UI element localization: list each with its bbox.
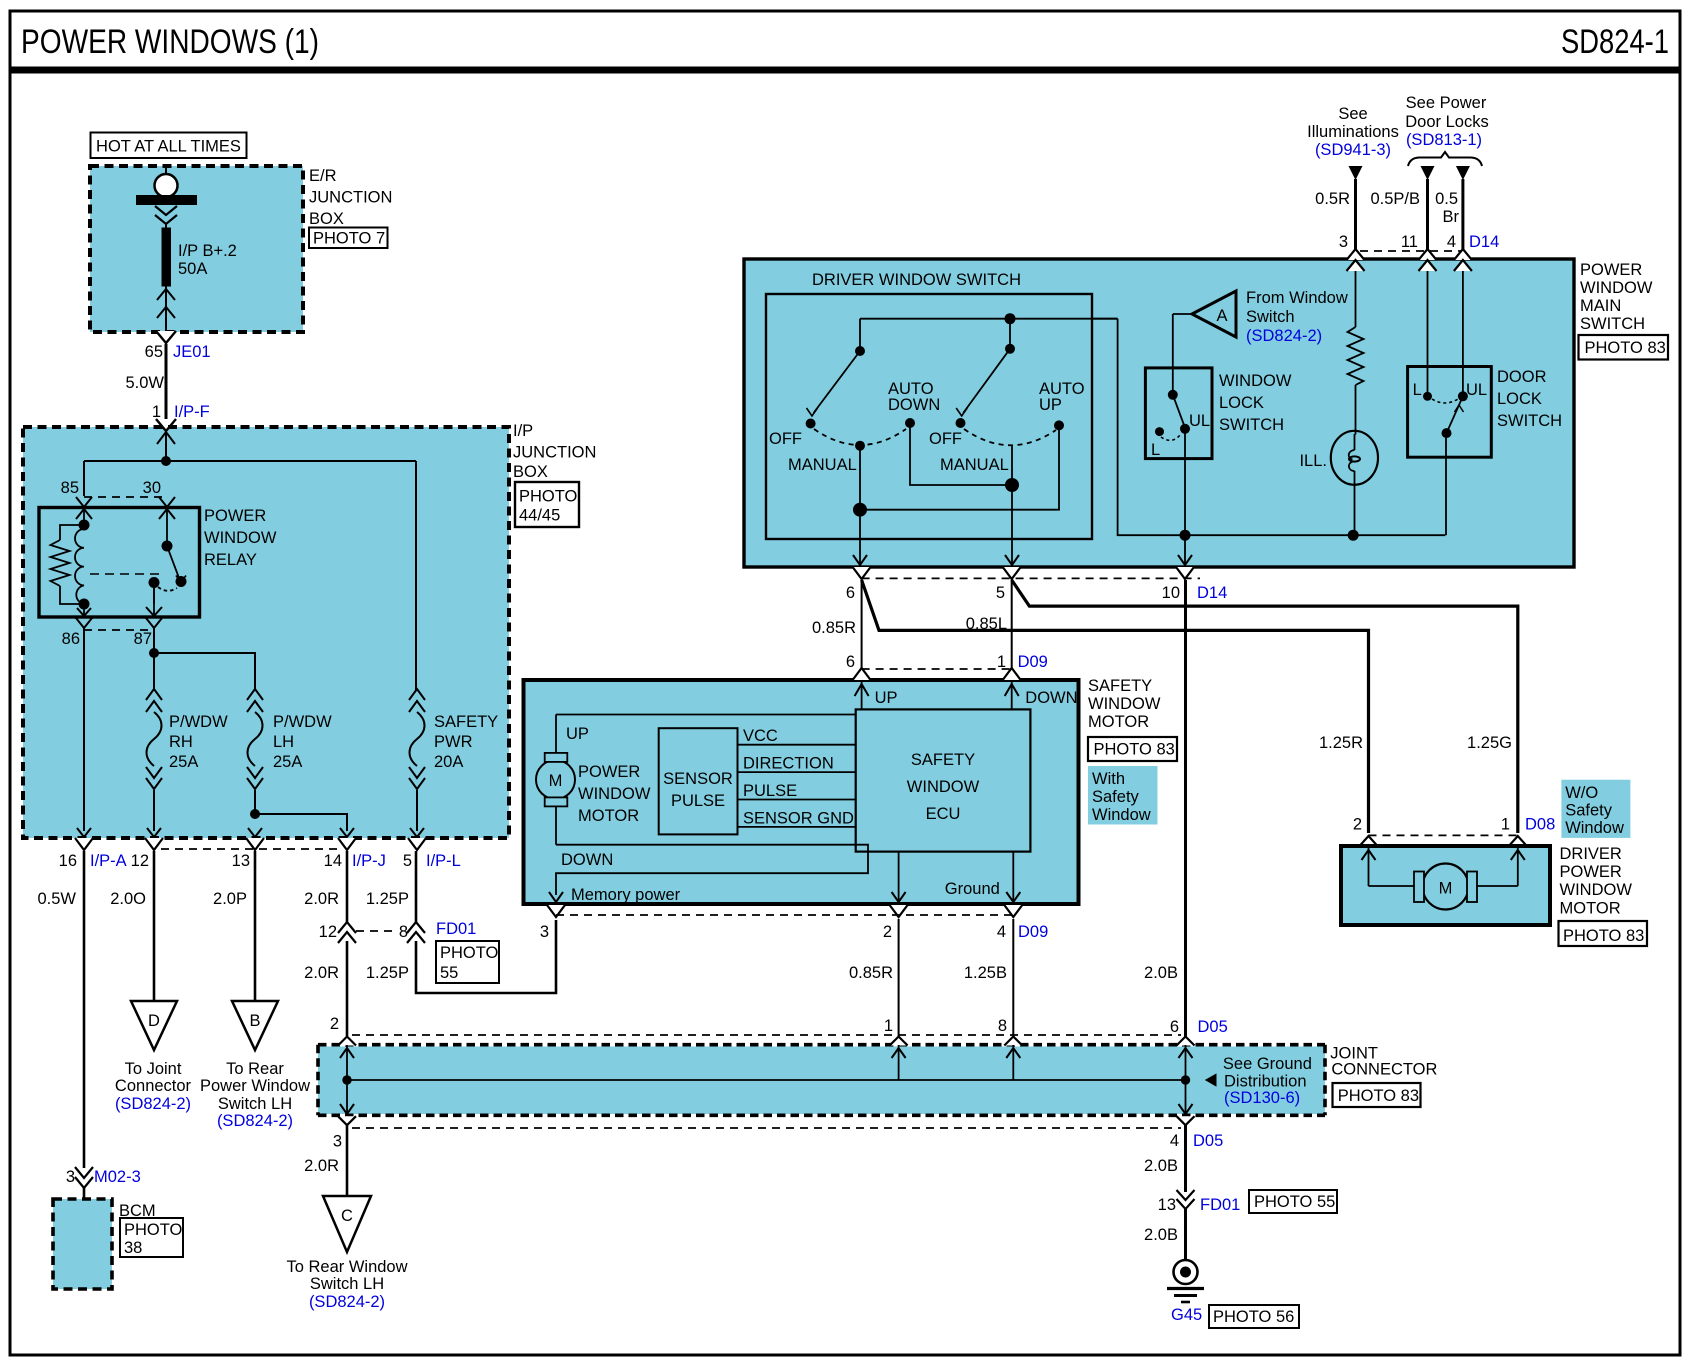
svg-text:DRIVER: DRIVER (1560, 845, 1622, 863)
svg-text:LOCK: LOCK (1219, 394, 1264, 412)
svg-text:2: 2 (883, 923, 892, 941)
svg-text:1.25G: 1.25G (1467, 734, 1512, 752)
svg-text:1: 1 (997, 653, 1006, 671)
svg-text:PHOTO 83: PHOTO 83 (1563, 927, 1644, 945)
svg-text:PHOTO 83: PHOTO 83 (1338, 1087, 1419, 1105)
svg-text:WINDOW: WINDOW (1560, 881, 1633, 899)
svg-text:SENSOR GND: SENSOR GND (743, 809, 854, 827)
svg-text:DOWN: DOWN (561, 851, 613, 869)
svg-text:FD01: FD01 (436, 920, 476, 938)
svg-text:13: 13 (232, 852, 250, 870)
svg-text:10: 10 (1162, 584, 1180, 602)
svg-text:To Rear: To Rear (226, 1060, 284, 1078)
svg-text:8: 8 (399, 923, 408, 941)
svg-text:D05: D05 (1198, 1018, 1228, 1036)
svg-text:PHOTO 7: PHOTO 7 (313, 230, 385, 248)
svg-text:SENSOR: SENSOR (663, 770, 733, 788)
svg-text:SD824-1: SD824-1 (1561, 23, 1669, 61)
svg-text:MAIN: MAIN (1580, 297, 1621, 315)
svg-text:I/P B+.2: I/P B+.2 (178, 242, 237, 260)
svg-text:JUNCTION: JUNCTION (309, 189, 392, 207)
svg-text:LH: LH (273, 733, 294, 751)
svg-text:FD01: FD01 (1200, 1196, 1240, 1214)
svg-text:SWITCH: SWITCH (1219, 416, 1284, 434)
svg-text:A: A (1216, 307, 1227, 325)
svg-text:MANUAL: MANUAL (940, 456, 1009, 474)
svg-text:DOWN: DOWN (1025, 689, 1077, 707)
svg-text:12: 12 (319, 923, 337, 941)
svg-text:PHOTO: PHOTO (124, 1221, 183, 1239)
svg-text:RH: RH (169, 733, 193, 751)
svg-text:5.0W: 5.0W (125, 374, 164, 392)
svg-text:I/P: I/P (513, 422, 533, 440)
svg-text:OFF: OFF (929, 430, 962, 448)
svg-text:(SD813-1): (SD813-1) (1406, 131, 1482, 149)
svg-text:PHOTO 56: PHOTO 56 (1213, 1308, 1294, 1326)
svg-text:65: 65 (145, 343, 163, 361)
svg-text:POWER: POWER (578, 763, 640, 781)
svg-text:Safety: Safety (1092, 788, 1140, 806)
svg-text:6: 6 (846, 584, 855, 602)
svg-text:ILL.: ILL. (1299, 452, 1327, 470)
svg-text:0.85R: 0.85R (849, 964, 893, 982)
svg-text:1.25B: 1.25B (964, 964, 1007, 982)
svg-text:Switch LH: Switch LH (310, 1275, 384, 1293)
svg-text:M: M (1439, 880, 1453, 898)
svg-text:DIRECTION: DIRECTION (743, 755, 834, 773)
svg-text:OFF: OFF (769, 430, 802, 448)
svg-text:4: 4 (997, 923, 1006, 941)
svg-text:JUNCTION: JUNCTION (513, 444, 596, 462)
svg-text:I/P-L: I/P-L (426, 852, 461, 870)
svg-text:W/O: W/O (1565, 784, 1598, 802)
svg-text:(SD824-2): (SD824-2) (1246, 327, 1322, 345)
svg-text:With: With (1092, 770, 1125, 788)
svg-text:B: B (249, 1012, 260, 1030)
svg-text:See Power: See Power (1406, 94, 1487, 112)
svg-text:BOX: BOX (513, 463, 548, 481)
svg-text:P/WDW: P/WDW (169, 713, 228, 731)
svg-text:3: 3 (1339, 233, 1348, 251)
svg-text:(SD824-2): (SD824-2) (309, 1293, 385, 1311)
svg-text:0.85L: 0.85L (966, 615, 1007, 633)
svg-text:MOTOR: MOTOR (1088, 713, 1149, 731)
svg-text:ECU: ECU (926, 805, 961, 823)
svg-text:DRIVER WINDOW SWITCH: DRIVER WINDOW SWITCH (812, 271, 1021, 289)
svg-text:1: 1 (884, 1017, 893, 1035)
svg-text:MOTOR: MOTOR (578, 807, 639, 825)
svg-text:SWITCH: SWITCH (1580, 315, 1645, 333)
svg-text:2.0B: 2.0B (1144, 1226, 1178, 1244)
svg-text:SAFETY: SAFETY (911, 751, 975, 769)
svg-text:25A: 25A (169, 753, 198, 771)
svg-text:WINDOW: WINDOW (907, 778, 980, 796)
svg-text:0.5R: 0.5R (1315, 190, 1350, 208)
svg-text:C: C (341, 1207, 353, 1225)
svg-text:HOT AT ALL TIMES: HOT AT ALL TIMES (96, 138, 241, 156)
svg-text:I/P-J: I/P-J (352, 852, 386, 870)
svg-text:1.25P: 1.25P (366, 890, 409, 908)
svg-text:2.0B: 2.0B (1144, 1157, 1178, 1175)
svg-text:POWER WINDOWS (1): POWER WINDOWS (1) (21, 23, 319, 61)
svg-text:2.0P: 2.0P (213, 890, 247, 908)
svg-text:1.25R: 1.25R (1319, 734, 1363, 752)
svg-text:87: 87 (134, 630, 152, 648)
svg-text:(SD824-2): (SD824-2) (217, 1112, 293, 1130)
svg-text:WINDOW: WINDOW (1580, 279, 1653, 297)
svg-text:2.0R: 2.0R (304, 890, 339, 908)
svg-text:D05: D05 (1193, 1132, 1223, 1150)
svg-text:PHOTO: PHOTO (440, 944, 499, 962)
svg-text:50A: 50A (178, 260, 207, 278)
svg-text:CONNECTOR: CONNECTOR (1331, 1061, 1437, 1079)
svg-text:I/P-F: I/P-F (174, 403, 210, 421)
svg-text:Safety: Safety (1565, 802, 1613, 820)
svg-text:55: 55 (440, 964, 458, 982)
svg-text:Power Window: Power Window (200, 1077, 310, 1095)
svg-text:(SD824-2): (SD824-2) (115, 1095, 191, 1113)
svg-text:WINDOW: WINDOW (204, 529, 277, 547)
svg-text:SAFETY: SAFETY (1088, 677, 1152, 695)
svg-text:4: 4 (1170, 1132, 1179, 1150)
svg-text:25A: 25A (273, 753, 302, 771)
svg-text:PWR: PWR (434, 733, 473, 751)
svg-text:P/WDW: P/WDW (273, 713, 332, 731)
svg-text:6: 6 (1170, 1018, 1179, 1036)
svg-text:30: 30 (143, 479, 161, 497)
svg-text:PHOTO 83: PHOTO 83 (1094, 741, 1175, 759)
svg-text:16: 16 (59, 852, 77, 870)
svg-text:UL: UL (1189, 412, 1210, 430)
svg-text:Switch: Switch (1246, 308, 1295, 326)
svg-text:D: D (148, 1012, 160, 1030)
svg-text:3: 3 (540, 923, 549, 941)
svg-text:D09: D09 (1018, 923, 1048, 941)
svg-text:1: 1 (1501, 816, 1510, 834)
svg-text:JE01: JE01 (173, 343, 211, 361)
svg-text:5: 5 (403, 852, 412, 870)
svg-text:20A: 20A (434, 753, 463, 771)
svg-text:0.5: 0.5 (1435, 190, 1458, 208)
svg-text:POWER: POWER (1560, 863, 1622, 881)
svg-text:14: 14 (324, 852, 342, 870)
svg-text:(SD941-3): (SD941-3) (1315, 141, 1391, 159)
svg-text:8: 8 (998, 1017, 1007, 1035)
svg-text:WINDOW: WINDOW (1219, 372, 1292, 390)
svg-text:WINDOW: WINDOW (578, 785, 651, 803)
svg-text:1.25P: 1.25P (366, 964, 409, 982)
svg-text:85: 85 (61, 479, 79, 497)
svg-text:RELAY: RELAY (204, 551, 257, 569)
svg-text:D08: D08 (1525, 816, 1555, 834)
svg-text:86: 86 (62, 630, 80, 648)
svg-text:5: 5 (996, 584, 1005, 602)
svg-text:Br: Br (1443, 208, 1460, 226)
svg-text:See Ground: See Ground (1223, 1055, 1312, 1073)
svg-text:L: L (1151, 441, 1160, 459)
svg-text:2.0R: 2.0R (304, 964, 339, 982)
svg-text:2.0O: 2.0O (110, 890, 146, 908)
svg-text:PULSE: PULSE (743, 782, 797, 800)
svg-text:From Window: From Window (1246, 289, 1348, 307)
svg-text:44/45: 44/45 (519, 507, 560, 525)
svg-text:0.85R: 0.85R (812, 619, 856, 637)
svg-text:DOWN: DOWN (888, 396, 940, 414)
svg-text:Connector: Connector (115, 1077, 192, 1095)
svg-text:LOCK: LOCK (1497, 390, 1542, 408)
svg-text:6: 6 (846, 653, 855, 671)
svg-text:BOX: BOX (309, 210, 344, 228)
svg-text:D14: D14 (1469, 233, 1499, 251)
svg-text:L: L (1413, 381, 1422, 399)
svg-text:2: 2 (330, 1015, 339, 1033)
svg-text:11: 11 (1401, 233, 1418, 251)
svg-text:13: 13 (1158, 1196, 1176, 1214)
svg-text:DOOR: DOOR (1497, 368, 1547, 386)
svg-text:UP: UP (875, 689, 898, 707)
svg-text:WINDOW: WINDOW (1088, 695, 1161, 713)
svg-text:12: 12 (131, 852, 149, 870)
svg-text:Switch LH: Switch LH (218, 1095, 292, 1113)
svg-text:PHOTO 55: PHOTO 55 (1254, 1193, 1335, 1211)
svg-text:2.0R: 2.0R (304, 1157, 339, 1175)
svg-text:Door Locks: Door Locks (1405, 113, 1488, 131)
svg-text:UL: UL (1466, 381, 1487, 399)
svg-text:1: 1 (152, 403, 161, 421)
svg-text:MANUAL: MANUAL (788, 456, 857, 474)
svg-text:3: 3 (333, 1133, 342, 1151)
svg-text:0.5P/B: 0.5P/B (1370, 190, 1420, 208)
svg-text:I/P-A: I/P-A (90, 852, 127, 870)
svg-text:UP: UP (566, 725, 589, 743)
svg-text:M: M (549, 772, 563, 790)
svg-text:Memory power: Memory power (571, 886, 681, 904)
svg-text:(SD130-6): (SD130-6) (1224, 1089, 1300, 1107)
svg-text:4: 4 (1447, 233, 1456, 251)
svg-text:Window: Window (1565, 819, 1624, 837)
svg-text:E/R: E/R (309, 167, 337, 185)
svg-text:PULSE: PULSE (671, 792, 725, 810)
svg-text:38: 38 (124, 1239, 142, 1257)
svg-text:PHOTO 83: PHOTO 83 (1585, 339, 1666, 357)
svg-text:Ground: Ground (945, 880, 1000, 898)
svg-text:SAFETY: SAFETY (434, 713, 498, 731)
svg-text:MOTOR: MOTOR (1560, 900, 1621, 918)
svg-text:To Joint: To Joint (125, 1060, 182, 1078)
svg-text:D09: D09 (1018, 653, 1048, 671)
svg-text:Distribution: Distribution (1224, 1072, 1307, 1090)
svg-text:Window: Window (1092, 806, 1151, 824)
svg-text:VCC: VCC (743, 727, 778, 745)
svg-text:Illuminations: Illuminations (1307, 123, 1399, 141)
svg-text:POWER: POWER (1580, 261, 1642, 279)
svg-text:UP: UP (1039, 396, 1062, 414)
svg-text:PHOTO: PHOTO (519, 488, 578, 506)
svg-text:See: See (1338, 105, 1367, 123)
svg-text:3: 3 (66, 1168, 75, 1186)
svg-text:POWER: POWER (204, 507, 266, 525)
svg-text:To Rear Window: To Rear Window (286, 1258, 407, 1276)
svg-text:0.5W: 0.5W (37, 890, 76, 908)
svg-text:2.0B: 2.0B (1144, 964, 1178, 982)
svg-text:G45: G45 (1171, 1306, 1202, 1324)
svg-text:D14: D14 (1197, 584, 1227, 602)
svg-text:SWITCH: SWITCH (1497, 412, 1562, 430)
svg-text:2: 2 (1353, 816, 1362, 834)
svg-text:M02-3: M02-3 (94, 1168, 141, 1186)
